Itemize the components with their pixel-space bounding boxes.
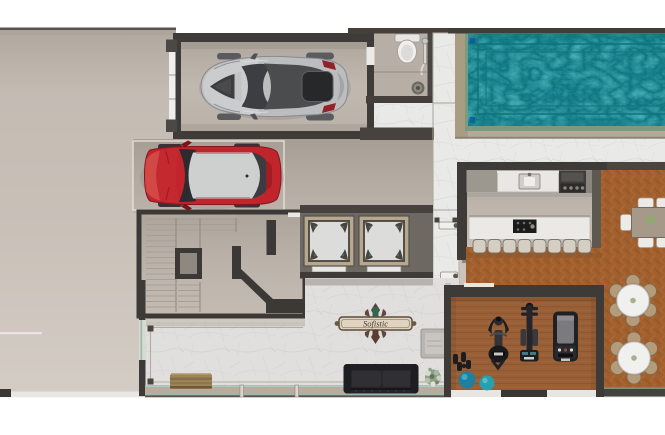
svg-text:Sofistic: Sofistic xyxy=(363,318,388,328)
